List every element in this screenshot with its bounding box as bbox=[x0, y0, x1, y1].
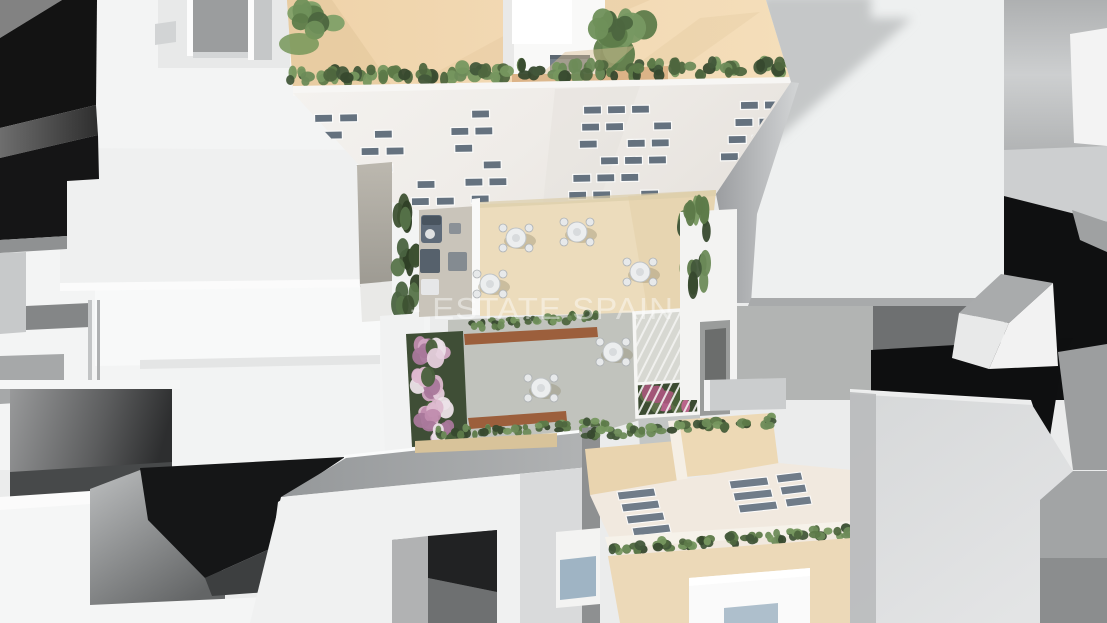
svg-text:- ESTATE SPAIN: - ESTATE SPAIN bbox=[410, 291, 674, 326]
